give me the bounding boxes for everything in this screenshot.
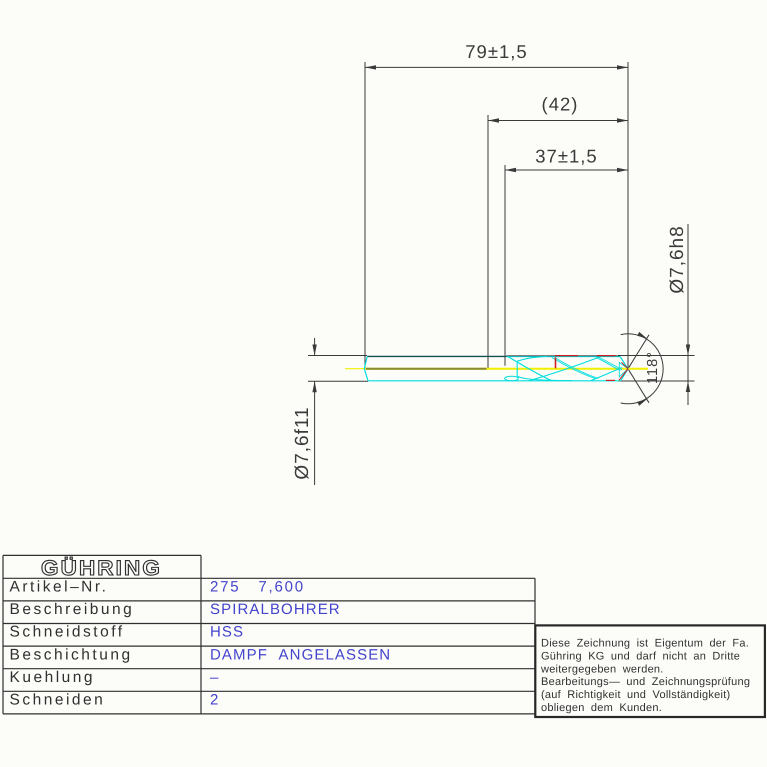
svg-text:–: – [210, 669, 219, 686]
svg-text:Schneidstoff: Schneidstoff [10, 624, 125, 641]
svg-text:HSS: HSS [210, 624, 244, 641]
svg-text:Ø7,6h8: Ø7,6h8 [667, 225, 688, 293]
svg-text:Bearbeitungs— und Zeichnungspr: Bearbeitungs— und Zeichnungsprüfung [541, 676, 750, 688]
svg-text:DAMPF ANGELASSEN: DAMPF ANGELASSEN [210, 646, 391, 663]
svg-text:2: 2 [210, 692, 219, 709]
svg-text:(42): (42) [542, 94, 579, 115]
svg-text:275 7,600: 275 7,600 [210, 579, 305, 596]
svg-text:Beschreibung: Beschreibung [10, 601, 135, 618]
svg-text:Schneiden: Schneiden [10, 692, 106, 709]
svg-text:Gühring KG und darf nicht an D: Gühring KG und darf nicht an Dritte [541, 650, 740, 662]
svg-text:118°: 118° [645, 351, 661, 384]
svg-text:Artikel–Nr.: Artikel–Nr. [10, 579, 109, 596]
svg-text:SPIRALBOHRER: SPIRALBOHRER [210, 601, 341, 618]
svg-text:Ø7,6f11: Ø7,6f11 [292, 406, 313, 479]
svg-text:(auf Richtigkeit und Vollständ: (auf Richtigkeit und Vollständigkeit) [541, 689, 730, 701]
svg-text:GÜHRING: GÜHRING [41, 557, 162, 580]
svg-text:Beschichtung: Beschichtung [10, 646, 133, 663]
svg-text:37±1,5: 37±1,5 [535, 146, 597, 167]
svg-text:weitergegeben werden.: weitergegeben werden. [540, 663, 664, 675]
svg-text:79±1,5: 79±1,5 [465, 41, 527, 62]
svg-text:Kuehlung: Kuehlung [10, 669, 96, 686]
svg-text:Diese Zeichnung ist Eigentum d: Diese Zeichnung ist Eigentum der Fa. [541, 638, 749, 650]
svg-text:obliegen dem Kunden.: obliegen dem Kunden. [541, 702, 662, 714]
